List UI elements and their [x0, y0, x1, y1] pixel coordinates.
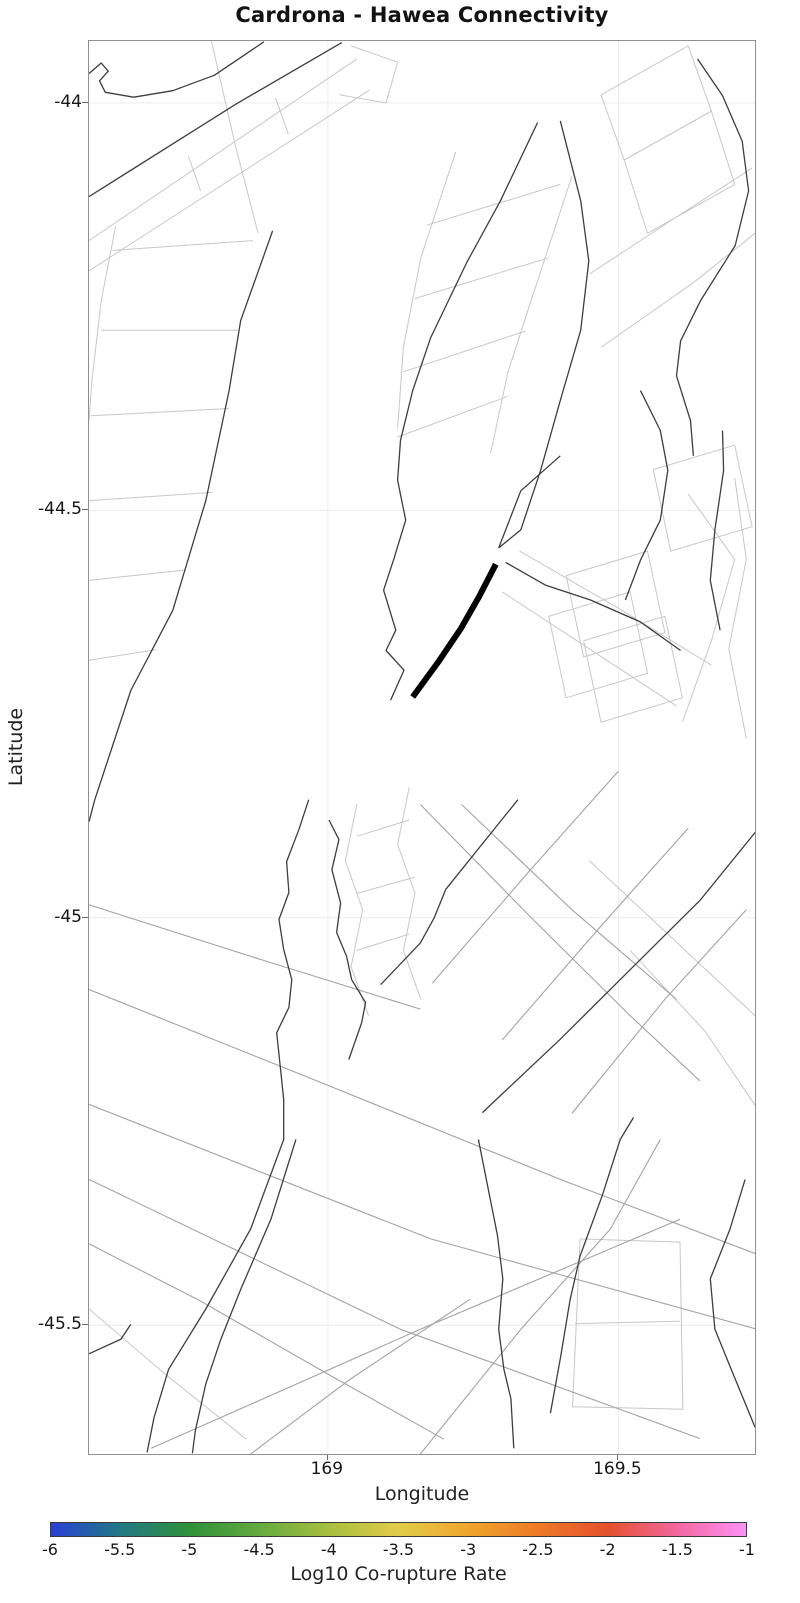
fault-trace-dark	[384, 123, 538, 701]
fault-map-svg	[89, 41, 755, 1454]
fault-trace-light	[584, 616, 683, 722]
y-tick-mark	[82, 102, 88, 103]
fault-trace-light	[427, 184, 561, 225]
fault-trace-medium	[89, 1179, 700, 1438]
fault-trace-light	[188, 156, 200, 191]
fault-trace-dark	[192, 1140, 296, 1454]
colorbar-tick-label: -4.5	[229, 1540, 289, 1560]
y-tick-label: -45	[0, 906, 82, 928]
fault-trace-medium	[433, 771, 619, 983]
fault-trace-dark	[710, 431, 723, 631]
fault-trace-light	[682, 494, 734, 722]
colorbar-tick-label: -4	[299, 1540, 359, 1560]
fault-trace-medium	[462, 805, 677, 1000]
fault-trace-dark	[550, 1118, 633, 1414]
fault-trace-light	[89, 59, 357, 241]
fault-trace-light	[91, 409, 229, 416]
fault-trace-light	[415, 258, 549, 299]
fault-trace-dark	[506, 563, 681, 651]
x-tick-label: 169.5	[572, 1459, 662, 1479]
fault-trace-light	[575, 1321, 680, 1323]
colorbar-tick-label: -1	[717, 1540, 777, 1560]
fault-trace-light	[398, 787, 421, 999]
figure-canvas: Cardrona - Hawea Connectivity Latitude -…	[0, 0, 800, 1603]
fault-trace-light	[357, 877, 415, 893]
fault-trace-medium	[89, 1244, 444, 1440]
colorbar-tick-label: -3.5	[369, 1540, 429, 1560]
plot-area	[88, 40, 756, 1455]
fault-trace-light	[89, 570, 186, 581]
fault-trace-dark	[89, 42, 264, 97]
fault-trace-light	[398, 396, 508, 437]
fault-trace-dark	[89, 231, 273, 822]
fault-trace-light	[357, 934, 409, 950]
fault-trace-dark	[89, 43, 342, 197]
fault-trace-dark	[147, 1140, 284, 1453]
colorbar-label: Log10 Co-rupture Rate	[50, 1562, 747, 1586]
fault-trace-medium	[89, 905, 420, 1009]
fault-trace-dark	[677, 59, 749, 456]
colorbar-tick-label: -2.5	[508, 1540, 568, 1560]
fault-trace-light	[212, 42, 259, 234]
fault-trace-dark	[625, 391, 667, 600]
x-tick-mark	[617, 1455, 618, 1460]
fault-trace-light	[573, 1239, 683, 1409]
colorbar-tick-label: -5	[159, 1540, 219, 1560]
colorbar-tick-label: -2	[578, 1540, 638, 1560]
fault-trace-light	[345, 804, 368, 1016]
y-tick-label: -44.5	[0, 498, 82, 520]
plot-title: Cardrona - Hawea Connectivity	[88, 3, 756, 27]
fault-trace-medium	[420, 1140, 660, 1455]
y-tick-mark	[82, 1324, 88, 1325]
x-tick-mark	[327, 1455, 328, 1460]
x-axis-label: Longitude	[88, 1482, 756, 1506]
fault-trace-medium	[89, 990, 755, 1255]
y-tick-mark	[82, 509, 88, 510]
highlighted-fault-pair	[413, 564, 496, 697]
fault-trace-light	[89, 492, 213, 500]
x-tick-label: 169	[282, 1459, 372, 1479]
fault-trace-light	[398, 152, 456, 429]
fault-trace-light	[502, 592, 676, 706]
colorbar-tick-label: -3	[438, 1540, 498, 1560]
fault-trace-medium	[151, 1219, 680, 1448]
fault-trace-light	[89, 226, 116, 421]
fault-trace-dark	[478, 1140, 513, 1449]
fault-trace-light	[340, 46, 398, 103]
fault-trace-light	[630, 950, 755, 1105]
fault-trace-light	[549, 592, 648, 698]
fault-trace-dark	[329, 820, 366, 1060]
fault-trace-light	[491, 176, 572, 453]
colorbar-tick-label: -1.5	[647, 1540, 707, 1560]
fault-trace-medium	[502, 828, 688, 1040]
colorbar-gradient	[50, 1522, 747, 1537]
y-axis-label: Latitude	[4, 697, 28, 797]
y-tick-label: -45.5	[0, 1313, 82, 1335]
fault-trace-light	[520, 551, 712, 665]
fault-trace-light	[729, 478, 747, 739]
fault-trace-light	[566, 551, 665, 657]
fault-trace-light	[589, 861, 755, 1016]
y-tick-label: -44	[0, 91, 82, 113]
fault-trace-dark	[499, 121, 589, 548]
colorbar-tick-label: -6	[20, 1540, 80, 1560]
fault-trace-light	[89, 650, 156, 661]
colorbar-tick-label: -5.5	[90, 1540, 150, 1560]
y-tick-mark	[82, 917, 88, 918]
fault-trace-dark	[710, 1179, 755, 1427]
